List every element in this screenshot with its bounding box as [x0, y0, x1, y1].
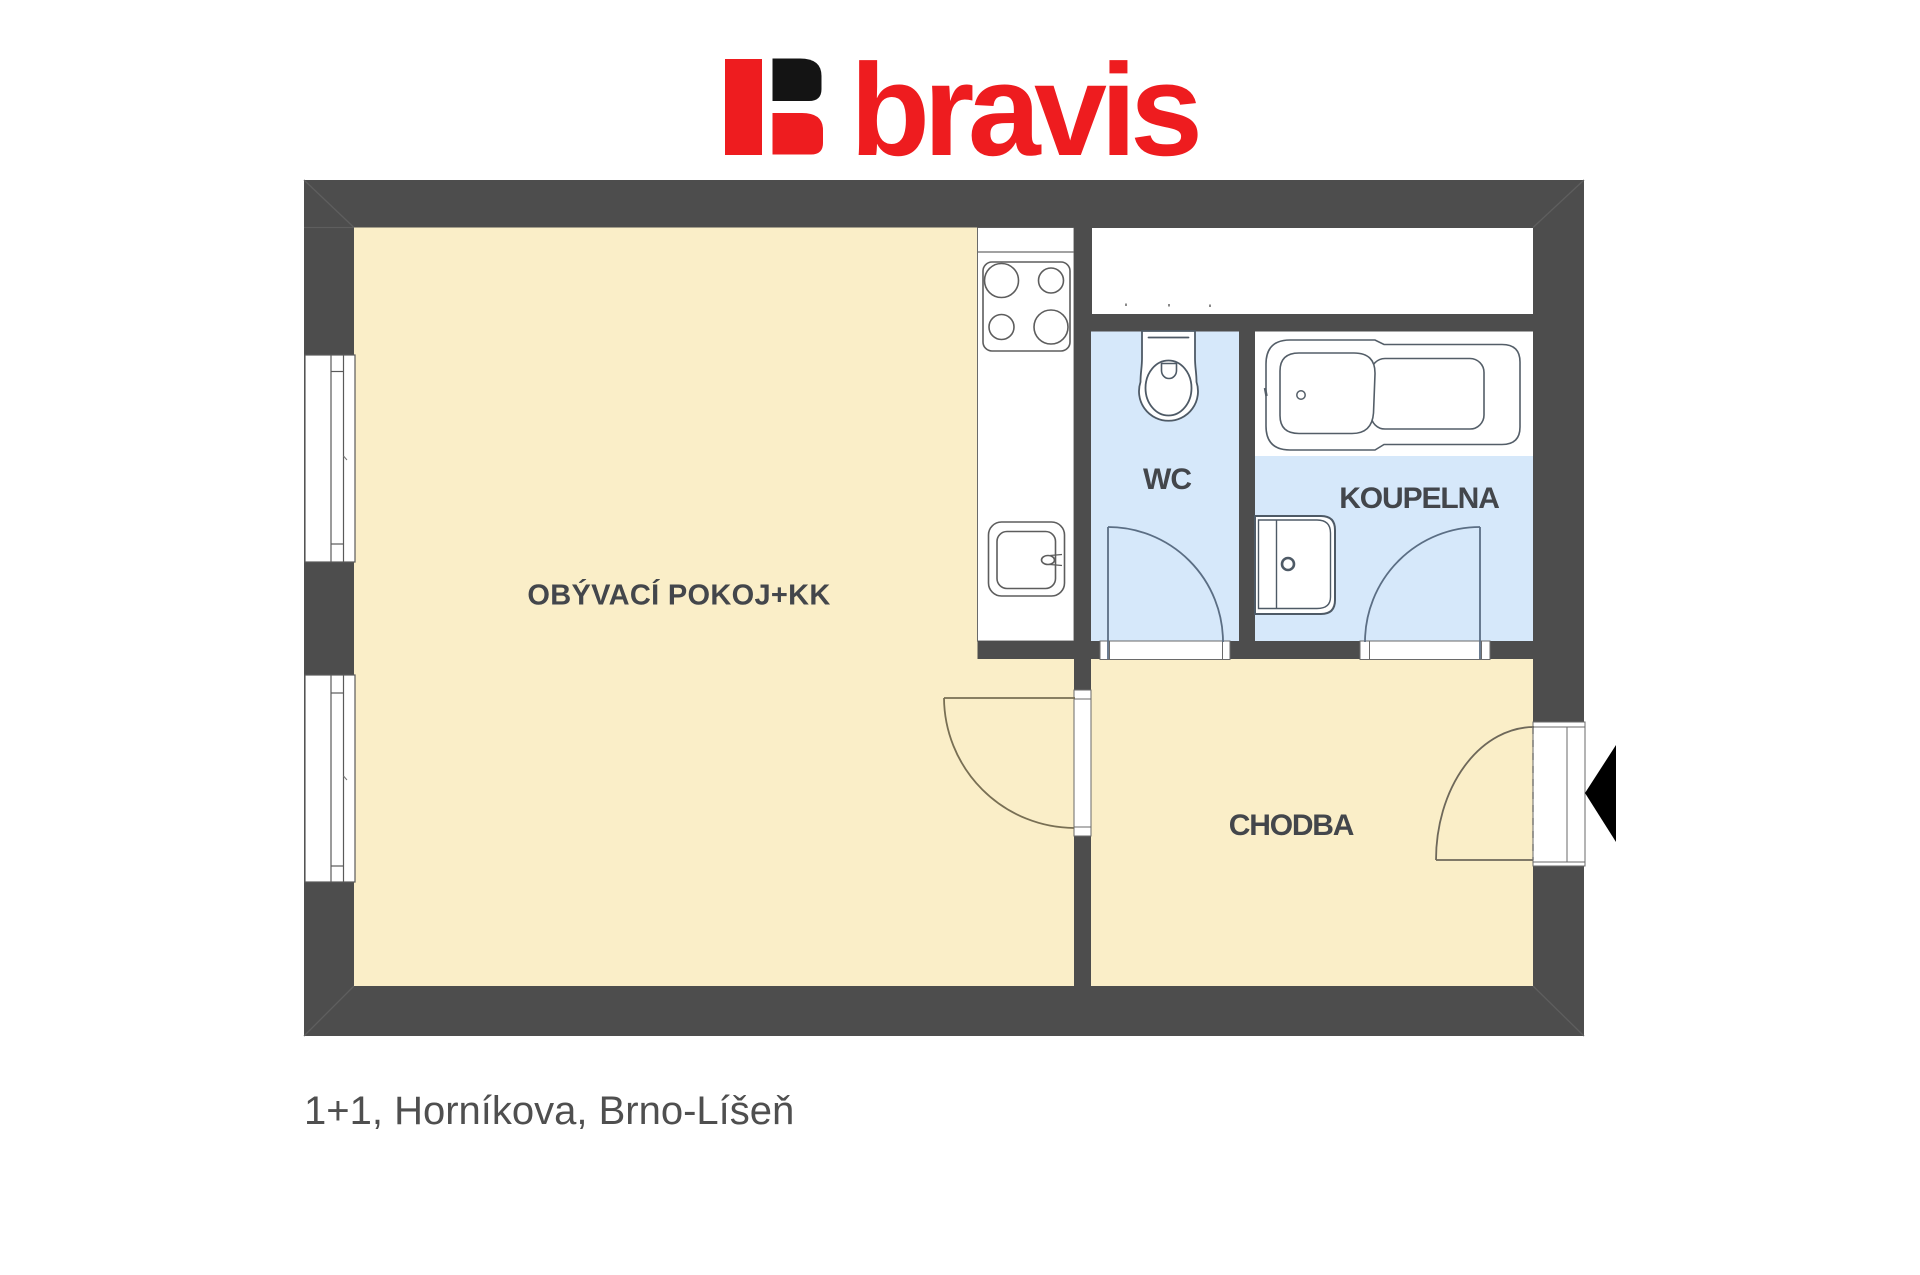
svg-text:1+1, Horníkova, Brno-Líšeň: 1+1, Horníkova, Brno-Líšeň: [304, 1089, 794, 1133]
svg-text:KOUPELNA: KOUPELNA: [1339, 482, 1499, 515]
svg-text:WC: WC: [1143, 463, 1191, 496]
svg-text:CHODBA: CHODBA: [1229, 809, 1354, 842]
svg-text:bravis: bravis: [850, 36, 1198, 183]
svg-text:OBÝVACÍ POKOJ+KK: OBÝVACÍ POKOJ+KK: [527, 578, 830, 612]
